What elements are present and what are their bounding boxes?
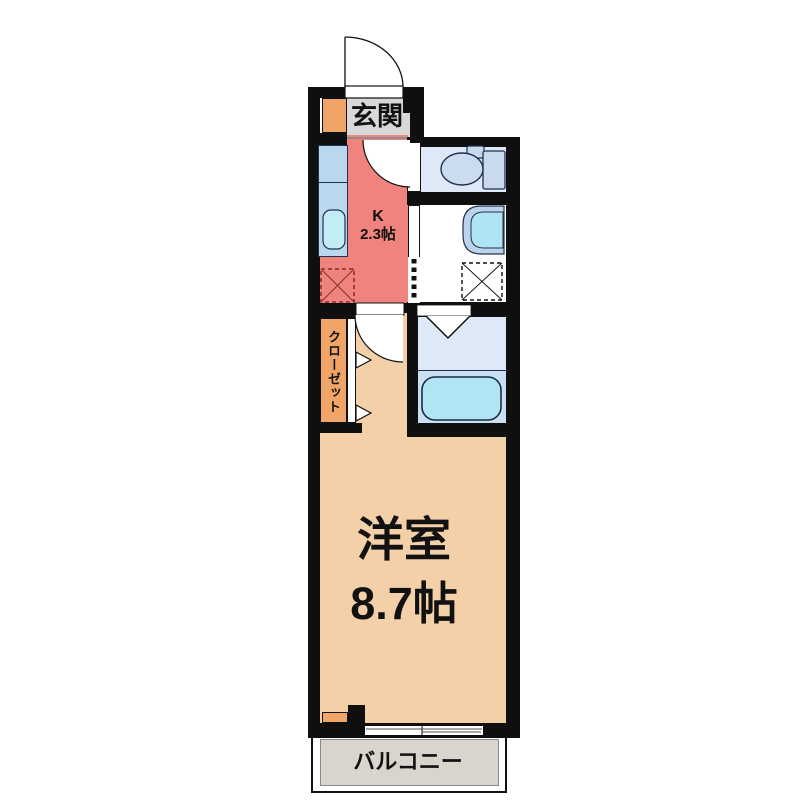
main-room-label: 洋室 8.7帖	[298, 510, 510, 634]
wall-top-entrance	[308, 87, 347, 98]
wall-washroom-bath	[407, 302, 520, 317]
wall-outer-right	[506, 137, 520, 738]
balcony-label: バルコニー	[318, 749, 498, 775]
closet-door-track	[347, 318, 356, 423]
closet-label: クローゼット	[321, 324, 346, 420]
kitchen-counter-divider	[318, 182, 348, 183]
wall-toilet-bottom	[407, 192, 506, 205]
wall-bath-left	[407, 315, 418, 437]
wall-kitchen-bottom-right	[403, 303, 410, 313]
floor-plan: 玄関 K 2.3帖 クローゼット 洋室 8.7帖 バルコニー	[0, 0, 800, 800]
genkan-label: 玄関	[344, 103, 410, 130]
wall-closet-bottom	[308, 423, 362, 433]
kitchen-label-size: 2.3帖	[338, 226, 418, 244]
washroom-floor	[420, 205, 506, 303]
genkan-step-line	[347, 137, 410, 139]
main-room-label-type: 洋室	[298, 510, 510, 570]
wall-bath-bottom	[407, 423, 520, 437]
wall-stub-bottom-left	[348, 705, 365, 723]
toilet-floor	[420, 147, 506, 193]
entrance-door-icon	[345, 37, 403, 98]
kitchen-label-type: K	[338, 208, 418, 226]
bathroom-floor-lower	[418, 370, 506, 423]
pipe-space-orange	[322, 712, 348, 723]
kitchen-label: K 2.3帖	[338, 208, 418, 244]
main-room-label-size: 8.7帖	[298, 574, 510, 634]
wall-under-cabinet	[308, 133, 347, 145]
wall-top-right-section	[416, 137, 520, 147]
accordion-door	[408, 257, 420, 303]
wall-bottom	[308, 723, 520, 738]
toilet-door	[407, 142, 421, 192]
bathroom-floor-upper	[418, 317, 506, 370]
wall-closet-top	[318, 310, 357, 318]
